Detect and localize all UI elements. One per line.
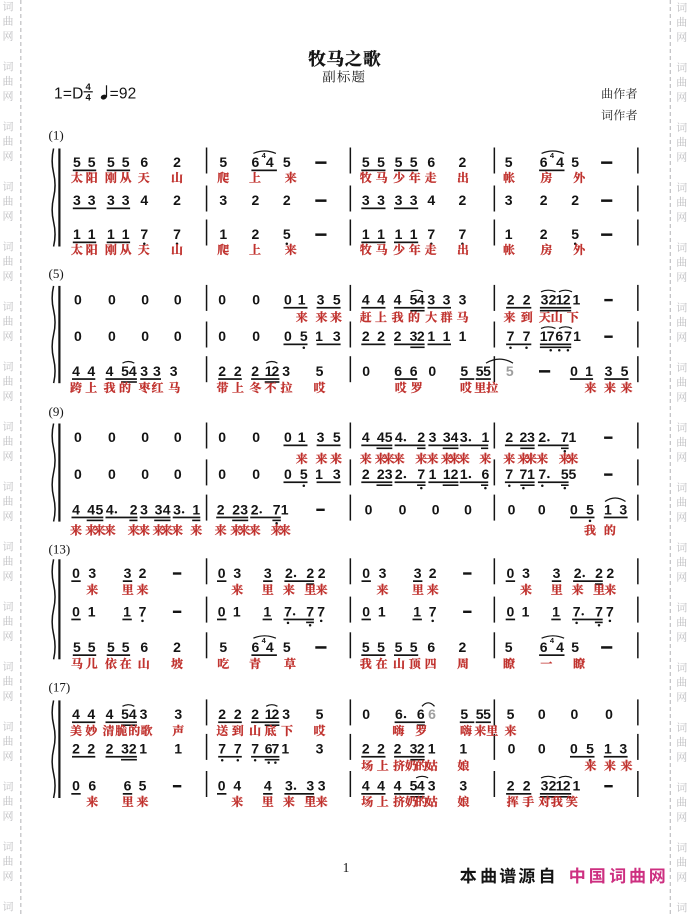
svg-text:5: 5	[88, 154, 96, 170]
svg-text:网: 网	[3, 688, 14, 704]
svg-text:3: 3	[170, 363, 178, 379]
svg-text:2: 2	[318, 565, 326, 581]
svg-text:5: 5	[385, 429, 393, 445]
svg-text:词: 词	[676, 900, 687, 914]
svg-text:曲: 曲	[676, 254, 687, 270]
svg-text:2: 2	[173, 154, 181, 170]
svg-text:2: 2	[362, 466, 370, 482]
svg-text:网: 网	[3, 868, 14, 884]
svg-text:5: 5	[483, 363, 491, 379]
svg-text:4: 4	[427, 192, 435, 208]
svg-text:4: 4	[233, 778, 241, 794]
svg-text:3: 3	[285, 778, 293, 794]
svg-text:1: 1	[315, 466, 323, 482]
svg-text:1: 1	[573, 778, 581, 794]
svg-text:4: 4	[362, 429, 370, 445]
svg-text:房: 房	[540, 241, 552, 258]
svg-text:2: 2	[362, 741, 370, 757]
svg-text:山: 山	[171, 241, 183, 258]
svg-text:来: 来	[536, 450, 548, 467]
svg-text:1: 1	[298, 429, 306, 445]
svg-text:拉: 拉	[486, 379, 498, 396]
svg-text:0: 0	[74, 292, 82, 308]
svg-text:0: 0	[218, 429, 226, 445]
svg-text:走: 走	[425, 241, 437, 258]
svg-text:标: 标	[337, 65, 351, 85]
svg-text:3: 3	[541, 292, 549, 308]
svg-text:5: 5	[505, 154, 513, 170]
svg-text:我: 我	[584, 522, 596, 539]
svg-text:2: 2	[173, 192, 181, 208]
svg-text:场: 场	[361, 793, 373, 810]
svg-text:网: 网	[3, 508, 14, 524]
svg-text:6: 6	[427, 639, 435, 655]
svg-text:来: 来	[136, 793, 148, 810]
svg-text:来: 来	[86, 581, 98, 598]
svg-text:上: 上	[85, 379, 97, 396]
svg-text:3: 3	[505, 192, 513, 208]
svg-text:网: 网	[3, 28, 14, 44]
svg-text:2: 2	[251, 706, 259, 722]
svg-text:山: 山	[249, 722, 261, 739]
svg-text:顶: 顶	[409, 655, 421, 672]
svg-text:里: 里	[412, 581, 424, 598]
svg-text:2: 2	[252, 192, 260, 208]
svg-text:网: 网	[676, 749, 687, 765]
svg-text:7: 7	[429, 603, 437, 619]
svg-text:(1): (1)	[49, 127, 64, 142]
svg-text:嗨: 嗨	[392, 722, 404, 739]
svg-text:少: 少	[393, 241, 405, 258]
svg-text:2: 2	[87, 741, 95, 757]
svg-text:曲: 曲	[3, 193, 14, 209]
svg-text:中: 中	[569, 862, 586, 887]
svg-text:0: 0	[74, 328, 82, 344]
svg-text:3: 3	[282, 363, 290, 379]
svg-text:0: 0	[252, 429, 260, 445]
svg-text:马: 马	[71, 655, 83, 672]
svg-text:1: 1	[460, 466, 468, 482]
svg-text:上: 上	[249, 241, 261, 258]
svg-text:罗: 罗	[415, 722, 427, 739]
svg-text:1: 1	[459, 328, 467, 344]
svg-text:声: 声	[172, 722, 184, 739]
svg-text:6: 6	[252, 639, 260, 655]
svg-text:来: 来	[620, 379, 632, 396]
svg-text:3: 3	[333, 328, 341, 344]
svg-text:网: 网	[3, 148, 14, 164]
svg-text:0: 0	[108, 429, 116, 445]
svg-text:源: 源	[518, 862, 535, 887]
svg-text:上: 上	[375, 309, 387, 326]
svg-text:曲: 曲	[676, 614, 687, 630]
svg-text:网: 网	[3, 808, 14, 824]
svg-text:7: 7	[140, 226, 148, 242]
svg-text:2: 2	[377, 741, 385, 757]
svg-text:2: 2	[272, 706, 280, 722]
svg-text:5: 5	[219, 154, 227, 170]
svg-text:来: 来	[572, 581, 584, 598]
svg-text:刚: 刚	[105, 169, 117, 186]
svg-text:2: 2	[574, 565, 582, 581]
svg-text:3: 3	[306, 778, 314, 794]
svg-text:0: 0	[141, 466, 149, 482]
svg-text:场: 场	[361, 757, 373, 774]
svg-text:1: 1	[139, 741, 147, 757]
svg-text:2: 2	[538, 429, 546, 445]
svg-text:3: 3	[153, 363, 161, 379]
svg-text:歌: 歌	[140, 722, 152, 739]
svg-text:5: 5	[571, 226, 579, 242]
svg-text:5: 5	[377, 154, 385, 170]
svg-text:山: 山	[138, 655, 150, 672]
svg-text:3: 3	[124, 565, 132, 581]
svg-text:2: 2	[232, 501, 240, 517]
svg-text:外: 外	[573, 241, 585, 258]
svg-text:山: 山	[171, 169, 183, 186]
svg-text:0: 0	[174, 429, 182, 445]
svg-text:出: 出	[457, 241, 469, 258]
svg-text:4: 4	[377, 429, 385, 445]
svg-text:来: 来	[360, 450, 372, 467]
svg-text:0: 0	[538, 706, 546, 722]
svg-text:1: 1	[410, 226, 418, 242]
svg-text:1: 1	[522, 603, 530, 619]
svg-text:在: 在	[376, 655, 388, 672]
svg-text:来: 来	[215, 522, 227, 539]
svg-text:里: 里	[304, 793, 316, 810]
svg-text:坡: 坡	[171, 655, 183, 672]
svg-text:牧: 牧	[360, 241, 372, 258]
svg-text:来: 来	[279, 522, 291, 539]
svg-text:曲: 曲	[3, 433, 14, 449]
svg-text:来: 来	[316, 793, 328, 810]
svg-text:6: 6	[482, 466, 490, 482]
svg-text:5: 5	[410, 154, 418, 170]
svg-text:3: 3	[428, 778, 436, 794]
svg-text:7: 7	[505, 466, 513, 482]
svg-text:作: 作	[613, 85, 625, 102]
svg-text:大: 大	[425, 309, 437, 326]
svg-text:不: 不	[264, 379, 276, 396]
svg-text:来: 来	[584, 379, 596, 396]
svg-text:7: 7	[595, 603, 603, 619]
svg-text:2: 2	[507, 778, 515, 794]
svg-text:曲: 曲	[676, 494, 687, 510]
svg-text:3: 3	[173, 501, 181, 517]
svg-text:曲: 曲	[676, 74, 687, 90]
svg-text:红: 红	[151, 379, 163, 396]
svg-text:曲: 曲	[629, 862, 646, 887]
svg-text:群: 群	[440, 309, 452, 326]
svg-text:0: 0	[464, 501, 472, 517]
svg-text:2: 2	[523, 292, 531, 308]
svg-text:网: 网	[676, 149, 687, 165]
svg-text:2: 2	[429, 565, 437, 581]
svg-text:4: 4	[556, 154, 564, 170]
svg-text:3: 3	[377, 192, 385, 208]
svg-text:6: 6	[88, 778, 96, 794]
svg-text:2: 2	[394, 741, 402, 757]
svg-text:4: 4	[556, 639, 564, 655]
svg-text:2: 2	[540, 226, 548, 242]
svg-text:3: 3	[73, 192, 81, 208]
svg-text:来: 来	[231, 793, 243, 810]
svg-text:4: 4	[377, 778, 385, 794]
svg-text:5: 5	[122, 639, 130, 655]
svg-text:笑: 笑	[566, 793, 578, 810]
svg-text:来: 来	[503, 309, 515, 326]
svg-text:来: 来	[70, 522, 82, 539]
svg-text:者: 者	[625, 107, 637, 124]
svg-text:2: 2	[595, 565, 603, 581]
svg-text:1: 1	[298, 292, 306, 308]
svg-text:0: 0	[72, 565, 80, 581]
svg-text:里: 里	[486, 722, 498, 739]
svg-text:曲: 曲	[676, 854, 687, 870]
svg-text:枣: 枣	[138, 379, 150, 396]
svg-text:2: 2	[459, 192, 467, 208]
svg-text:我: 我	[103, 379, 115, 396]
svg-text:哎: 哎	[313, 722, 325, 739]
svg-text:来: 来	[427, 581, 439, 598]
svg-text:者: 者	[625, 85, 637, 102]
svg-text:外: 外	[573, 169, 585, 186]
svg-text:出: 出	[457, 169, 469, 186]
svg-text:5: 5	[460, 363, 468, 379]
svg-text:网: 网	[676, 29, 687, 45]
svg-text:1: 1	[281, 501, 289, 517]
svg-text:1=D: 1=D	[54, 85, 83, 102]
svg-text:3: 3	[385, 466, 393, 482]
svg-text:3: 3	[219, 192, 227, 208]
svg-text:7: 7	[306, 603, 314, 619]
svg-text:3: 3	[88, 565, 96, 581]
svg-text:5: 5	[586, 741, 594, 757]
svg-text:脆: 脆	[115, 722, 127, 739]
svg-text:来: 来	[520, 581, 532, 598]
svg-text:1: 1	[377, 226, 385, 242]
svg-text:哎: 哎	[395, 379, 407, 396]
svg-text:5: 5	[586, 501, 594, 517]
svg-text:3: 3	[155, 501, 163, 517]
svg-text:上: 上	[249, 169, 261, 186]
svg-text:6: 6	[140, 154, 148, 170]
svg-text:清: 清	[102, 722, 114, 739]
svg-text:3: 3	[264, 565, 272, 581]
svg-text:3: 3	[362, 192, 370, 208]
svg-text:2: 2	[217, 501, 225, 517]
svg-text:5: 5	[621, 363, 629, 379]
svg-text:1: 1	[107, 226, 115, 242]
svg-text:到: 到	[521, 309, 533, 326]
svg-text:里: 里	[122, 581, 134, 598]
svg-text:儿: 儿	[86, 655, 98, 672]
svg-text:0: 0	[538, 501, 546, 517]
svg-text:2: 2	[139, 565, 147, 581]
svg-text:0: 0	[141, 292, 149, 308]
svg-text:来: 来	[315, 450, 327, 467]
svg-text:作: 作	[613, 107, 625, 124]
svg-text:1: 1	[443, 328, 451, 344]
svg-text:2: 2	[459, 154, 467, 170]
svg-text:0: 0	[284, 429, 292, 445]
svg-text:7: 7	[564, 328, 572, 344]
svg-text:哎: 哎	[313, 379, 325, 396]
svg-text:2: 2	[234, 363, 242, 379]
svg-text:3: 3	[410, 192, 418, 208]
svg-text:7: 7	[139, 603, 147, 619]
svg-text:阳: 阳	[86, 241, 98, 258]
svg-text:5: 5	[219, 639, 227, 655]
svg-text:7: 7	[284, 603, 292, 619]
svg-text:5: 5	[410, 639, 418, 655]
svg-text:姑: 姑	[426, 793, 438, 810]
svg-text:4: 4	[140, 192, 148, 208]
svg-text:2: 2	[417, 429, 425, 445]
svg-text:(5): (5)	[49, 266, 64, 281]
svg-text:0: 0	[141, 429, 149, 445]
svg-text:曲: 曲	[676, 14, 687, 30]
svg-text:我: 我	[391, 309, 403, 326]
svg-text:年: 年	[409, 241, 421, 258]
svg-text:0: 0	[365, 501, 373, 517]
svg-text:来: 来	[604, 379, 616, 396]
svg-text:0: 0	[252, 466, 260, 482]
svg-text:3: 3	[427, 292, 435, 308]
svg-text:冬: 冬	[249, 379, 261, 396]
svg-text:6: 6	[555, 328, 563, 344]
svg-text:嗨: 嗨	[460, 722, 472, 739]
svg-text:7: 7	[547, 328, 555, 344]
svg-text:里: 里	[593, 581, 605, 598]
svg-text:2: 2	[272, 363, 280, 379]
svg-text:里: 里	[551, 581, 563, 598]
svg-text:来: 来	[315, 309, 327, 326]
svg-text:0: 0	[570, 501, 578, 517]
svg-text:6: 6	[540, 154, 548, 170]
svg-text:1: 1	[122, 226, 130, 242]
svg-text:1: 1	[429, 466, 437, 482]
svg-text:7: 7	[417, 466, 425, 482]
svg-text:少: 少	[393, 169, 405, 186]
svg-text:到: 到	[232, 722, 244, 739]
svg-text:来: 来	[479, 450, 491, 467]
svg-text:4: 4	[72, 706, 80, 722]
svg-text:7: 7	[273, 501, 281, 517]
svg-text:3: 3	[316, 741, 324, 757]
svg-text:词: 词	[601, 107, 613, 124]
svg-text:5: 5	[316, 363, 324, 379]
svg-text:来: 来	[566, 450, 578, 467]
svg-text:上: 上	[377, 793, 389, 810]
svg-text:谱: 谱	[499, 862, 516, 887]
svg-text:0: 0	[218, 328, 226, 344]
svg-text:7: 7	[427, 226, 435, 242]
svg-text:挤: 挤	[393, 757, 405, 774]
svg-text:1: 1	[604, 501, 612, 517]
svg-text:曲: 曲	[3, 253, 14, 269]
svg-text:4: 4	[394, 292, 402, 308]
svg-text:网: 网	[3, 388, 14, 404]
svg-text:0: 0	[174, 292, 182, 308]
svg-text:网: 网	[676, 629, 687, 645]
svg-text:4: 4	[417, 292, 425, 308]
svg-text:=92: =92	[110, 85, 137, 102]
svg-text:0: 0	[252, 292, 260, 308]
svg-text:美: 美	[70, 722, 82, 739]
svg-text:0: 0	[174, 328, 182, 344]
svg-text:2: 2	[130, 501, 138, 517]
svg-text:4: 4	[129, 363, 137, 379]
svg-text:0: 0	[538, 741, 546, 757]
svg-text:青: 青	[249, 655, 261, 672]
svg-text:来: 来	[376, 581, 388, 598]
svg-text:3: 3	[527, 429, 535, 445]
svg-text:曲: 曲	[676, 374, 687, 390]
svg-text:3: 3	[522, 565, 530, 581]
svg-text:4: 4	[72, 501, 80, 517]
svg-text:来: 来	[171, 522, 183, 539]
svg-text:题: 题	[352, 65, 366, 85]
svg-text:4: 4	[72, 363, 80, 379]
svg-text:4: 4	[394, 778, 402, 794]
svg-text:来: 来	[604, 581, 616, 598]
svg-text:来: 来	[136, 581, 148, 598]
svg-text:5: 5	[571, 154, 579, 170]
svg-text:2: 2	[540, 192, 548, 208]
svg-text:网: 网	[676, 389, 687, 405]
svg-text:曲: 曲	[3, 553, 14, 569]
svg-text:网: 网	[3, 748, 14, 764]
svg-text:曲: 曲	[601, 85, 613, 102]
svg-text:网: 网	[676, 689, 687, 705]
svg-text:(9): (9)	[49, 404, 64, 419]
svg-text:网: 网	[3, 448, 14, 464]
svg-text:里: 里	[474, 379, 486, 396]
svg-text:娘: 娘	[457, 757, 469, 774]
svg-text:5: 5	[569, 466, 577, 482]
svg-text:来: 来	[285, 241, 297, 258]
svg-text:3: 3	[605, 363, 613, 379]
svg-text:0: 0	[570, 741, 578, 757]
svg-text:5: 5	[377, 639, 385, 655]
svg-text:爬: 爬	[217, 169, 229, 186]
svg-text:2: 2	[377, 328, 385, 344]
svg-text:0: 0	[72, 778, 80, 794]
svg-text:2: 2	[252, 226, 260, 242]
svg-text:1: 1	[281, 741, 289, 757]
svg-text:网: 网	[3, 328, 14, 344]
svg-text:本: 本	[460, 862, 477, 887]
svg-text:1: 1	[219, 226, 227, 242]
svg-text:0: 0	[108, 292, 116, 308]
svg-text:5: 5	[96, 501, 104, 517]
svg-text:0: 0	[507, 603, 515, 619]
svg-text:2: 2	[72, 741, 80, 757]
svg-text:5: 5	[121, 363, 129, 379]
svg-text:2: 2	[606, 565, 614, 581]
svg-text:马: 马	[376, 169, 388, 186]
svg-text:3: 3	[333, 466, 341, 482]
svg-text:天: 天	[539, 309, 551, 326]
svg-text:来: 来	[296, 309, 308, 326]
svg-text:爬: 爬	[217, 241, 229, 258]
svg-text:3: 3	[174, 706, 182, 722]
svg-text:7: 7	[538, 466, 546, 482]
svg-text:来: 来	[584, 757, 596, 774]
svg-text:瞭: 瞭	[573, 655, 585, 672]
